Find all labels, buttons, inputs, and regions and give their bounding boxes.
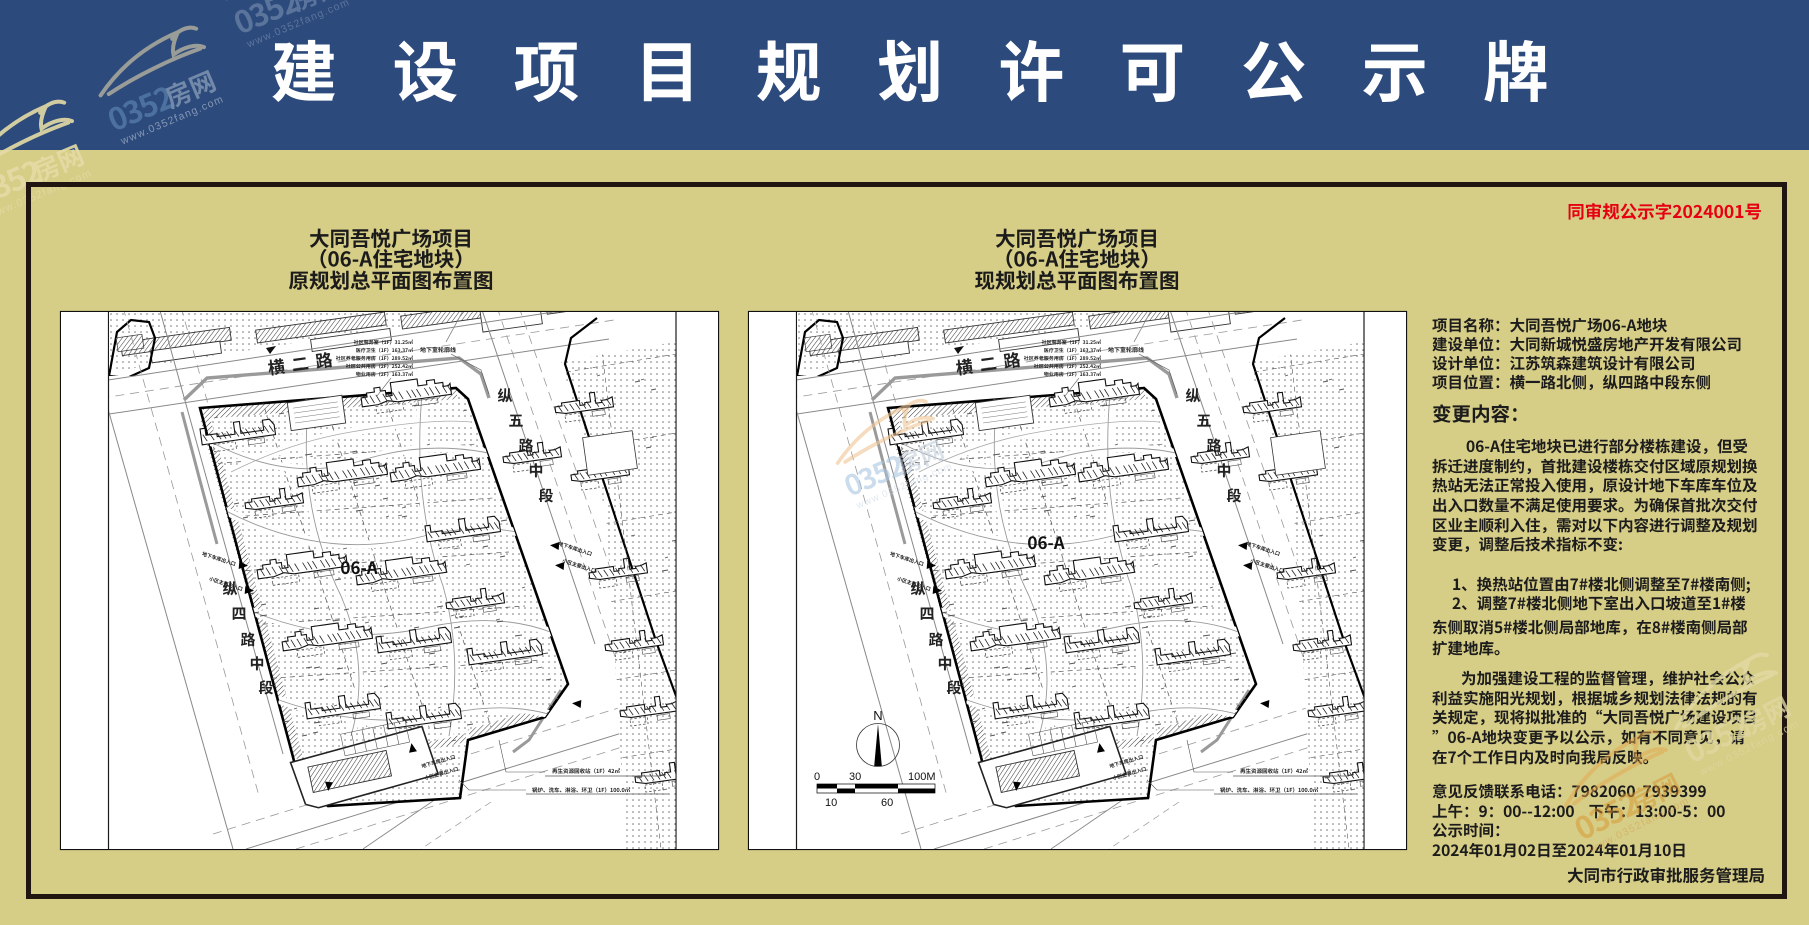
svg-text:10: 10 [825, 797, 837, 809]
svg-text:0: 0 [814, 771, 820, 783]
svg-text:60: 60 [881, 797, 893, 809]
svg-text:www.0352fang.com: www.0352fang.com [1587, 795, 1692, 856]
svg-text:30: 30 [849, 771, 861, 783]
svg-text:N: N [873, 708, 882, 723]
svg-text:100M: 100M [908, 771, 936, 783]
